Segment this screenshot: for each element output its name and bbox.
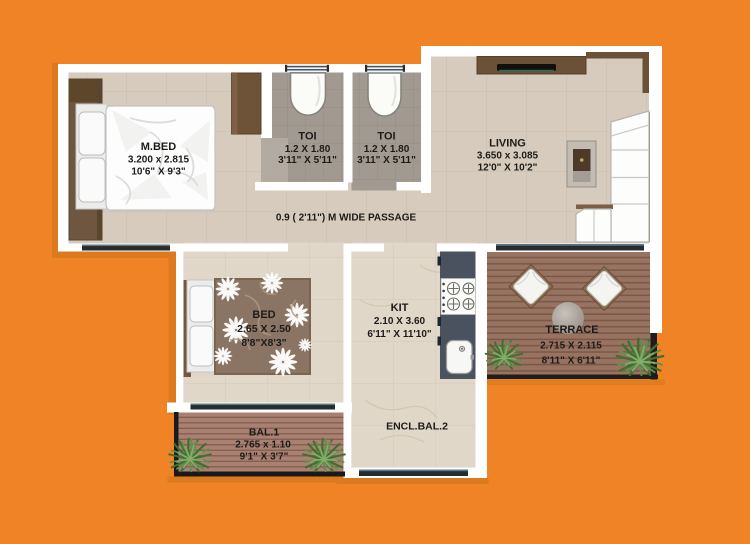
svg-text:M.BED: M.BED [141,141,177,153]
svg-text:3'11" X 5'11": 3'11" X 5'11" [357,155,416,166]
svg-text:10'6" X 9'3": 10'6" X 9'3" [131,167,186,178]
svg-text:2.765 x 1.10: 2.765 x 1.10 [235,440,291,451]
svg-text:9'1" X 3'7": 9'1" X 3'7" [240,452,289,463]
svg-text:KIT: KIT [391,302,409,314]
svg-text:2.10 X 3.60: 2.10 X 3.60 [374,316,426,327]
svg-text:2.65 X 2.50: 2.65 X 2.50 [237,323,291,335]
svg-text:LIVING: LIVING [489,138,526,150]
svg-text:1.2 X 1.80: 1.2 X 1.80 [285,144,331,155]
svg-text:BAL.1: BAL.1 [249,427,279,439]
svg-text:0.9 ( 2'11") M WIDE PASSAGE: 0.9 ( 2'11") M WIDE PASSAGE [276,213,417,224]
svg-text:3'11" X 5'11": 3'11" X 5'11" [278,155,337,166]
svg-text:TOI: TOI [377,131,395,143]
svg-text:8'8"X8'3": 8'8"X8'3" [241,337,286,349]
svg-text:ENCL.BAL.2: ENCL.BAL.2 [386,421,448,433]
svg-text:BED: BED [252,309,275,321]
svg-text:TERRACE: TERRACE [545,324,598,336]
svg-text:TOI: TOI [298,131,316,143]
svg-text:8'11" X 6'11": 8'11" X 6'11" [542,356,601,367]
svg-text:3.200 x 2.815: 3.200 x 2.815 [128,155,190,166]
svg-text:1.2 X 1.80: 1.2 X 1.80 [364,144,410,155]
svg-text:2.715 X 2.115: 2.715 X 2.115 [540,341,602,352]
svg-text:12'0" X 10'2": 12'0" X 10'2" [478,163,538,174]
svg-text:6'11" X 11'10": 6'11" X 11'10" [367,329,432,340]
svg-text:3.650 x 3.085: 3.650 x 3.085 [477,151,539,162]
